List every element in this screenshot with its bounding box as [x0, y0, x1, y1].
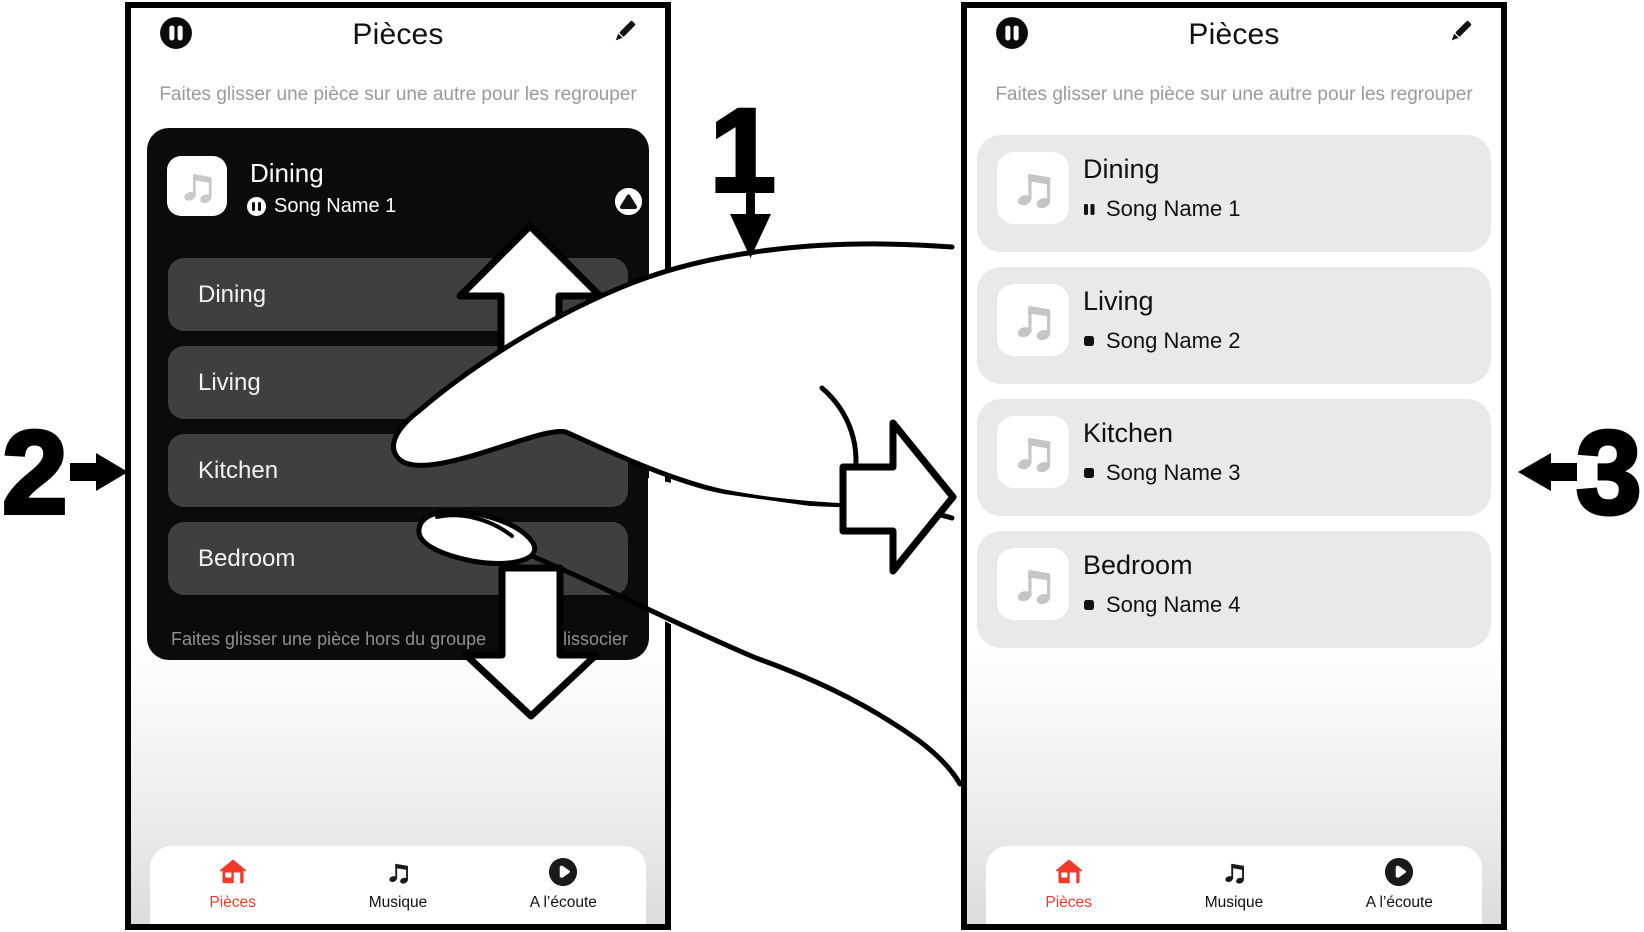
room-name: Living — [1083, 286, 1154, 317]
play-circle-icon — [1384, 857, 1414, 887]
group-room-row[interactable]: Dining — [168, 258, 628, 331]
room-card[interactable]: Bedroom Song Name 4 — [977, 531, 1491, 648]
room-card[interactable]: Kitchen Song Name 3 — [977, 399, 1491, 516]
play-circle-icon — [548, 857, 578, 887]
edit-pencil-icon[interactable] — [611, 18, 639, 46]
ungroup-hint-right: lissocier — [563, 629, 628, 650]
song-name: Song Name 3 — [1106, 460, 1241, 486]
step-1-label: 1 — [710, 92, 774, 210]
group-card[interactable]: Dining Song Name 1 Dining Living Kitchen… — [147, 128, 649, 660]
group-instruction-text: Faites glisser une pièce sur une autre p… — [131, 84, 665, 106]
phone-screen-right: Pièces Faites glisser une pièce sur une … — [961, 2, 1507, 930]
music-note-icon — [175, 164, 219, 208]
song-name: Song Name 2 — [1106, 328, 1241, 354]
album-art-placeholder — [997, 548, 1069, 620]
song-name: Song Name 1 — [1106, 196, 1241, 222]
playback-state-icon — [1083, 203, 1096, 216]
music-note-icon — [383, 857, 413, 887]
room-name: Dining — [1083, 154, 1160, 185]
step-3-arrow-icon — [1518, 453, 1577, 491]
music-note-icon — [1007, 162, 1059, 214]
house-icon — [1054, 857, 1084, 887]
transition-right-arrow-icon — [843, 423, 953, 571]
album-art-placeholder — [997, 416, 1069, 488]
step-2-arrow-icon — [70, 453, 128, 491]
room-name: Kitchen — [1083, 418, 1173, 449]
room-name: Bedroom — [1083, 550, 1193, 581]
music-note-icon — [1007, 426, 1059, 478]
music-note-icon — [1007, 558, 1059, 610]
album-art-placeholder — [997, 152, 1069, 224]
playback-state-icon — [1083, 335, 1096, 348]
group-room-row[interactable]: Bedroom — [168, 522, 628, 595]
nav-tab-a-lecoute[interactable]: A l’écoute — [1317, 846, 1482, 924]
phone-screen-left: Pièces Faites glisser une pièce sur une … — [125, 2, 671, 930]
nav-tab-pieces[interactable]: Pièces — [986, 846, 1151, 924]
music-note-icon — [1219, 857, 1249, 887]
album-art-placeholder — [997, 284, 1069, 356]
bottom-nav: Pièces Musique A l’écoute — [986, 846, 1482, 924]
nav-tab-musique[interactable]: Musique — [315, 846, 480, 924]
room-card[interactable]: Living Song Name 2 — [977, 267, 1491, 384]
nav-tab-musique[interactable]: Musique — [1151, 846, 1316, 924]
house-icon — [218, 857, 248, 887]
room-card[interactable]: Dining Song Name 1 — [977, 135, 1491, 252]
group-room-row[interactable]: Living — [168, 346, 628, 419]
group-room-name: Dining — [250, 158, 324, 189]
group-room-row[interactable]: Kitchen — [168, 434, 628, 507]
step-3-label: 3 — [1576, 414, 1640, 532]
group-song-name: Song Name 1 — [274, 195, 396, 218]
pause-state-icon — [247, 197, 266, 216]
music-note-icon — [1007, 294, 1059, 346]
group-instruction-text: Faites glisser une pièce sur une autre p… — [967, 84, 1501, 106]
page-title: Pièces — [131, 18, 665, 52]
edit-pencil-icon[interactable] — [1447, 18, 1475, 46]
ungroup-hint-left: Faites glisser une pièce hors du groupe — [171, 629, 486, 650]
album-art-placeholder — [167, 156, 227, 216]
nav-tab-pieces[interactable]: Pièces — [150, 846, 315, 924]
song-name: Song Name 4 — [1106, 592, 1241, 618]
nav-tab-a-lecoute[interactable]: A l’écoute — [481, 846, 646, 924]
eject-icon[interactable] — [615, 188, 642, 215]
playback-state-icon — [1083, 467, 1096, 480]
step-2-label: 2 — [2, 414, 66, 532]
bottom-nav: Pièces Musique A l’écoute — [150, 846, 646, 924]
page-title: Pièces — [967, 18, 1501, 52]
playback-state-icon — [1083, 599, 1096, 612]
